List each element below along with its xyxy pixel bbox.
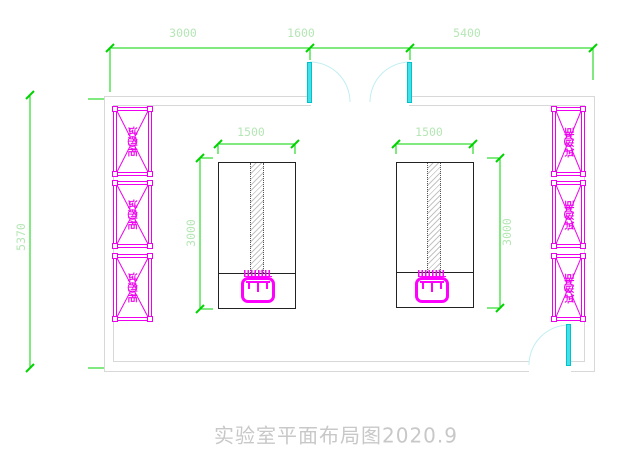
bench-reagent-shelf-hatch — [427, 163, 441, 272]
dim-top-segment-1: 3000 — [169, 26, 197, 40]
cabinet-corner-post — [580, 171, 586, 177]
cabinet-corner-post — [551, 253, 557, 259]
sink-basin — [415, 277, 449, 303]
cabinet-corner-post — [112, 253, 118, 259]
cabinet-corner-post — [580, 180, 586, 186]
floor-plan-canvas: 试剂柜 试剂柜 试剂柜 — [0, 0, 619, 469]
cabinet-corner-post — [147, 180, 153, 186]
cabinet-corner-post — [147, 316, 153, 322]
reagent-cabinet-right-2: 试剂柜 — [552, 181, 585, 248]
dim-left-bench-length: 3000 — [184, 219, 198, 247]
cabinet-corner-post — [147, 171, 153, 177]
cabinet-label: 试剂柜 — [562, 126, 576, 158]
sink-icon — [413, 270, 451, 303]
cabinet-corner-post — [112, 243, 118, 249]
bench-reagent-shelf-hatch — [250, 163, 264, 273]
cabinet-corner-post — [112, 316, 118, 322]
cabinet-label: 试剂柜 — [126, 199, 140, 231]
cabinet-corner-post — [112, 180, 118, 186]
sink-icon — [239, 270, 277, 303]
double-door-left-leaf — [307, 62, 312, 103]
drawing-title: 实验室平面布局图2020.9 — [214, 420, 458, 449]
dim-right-bench-length: 3000 — [500, 218, 514, 246]
faucet-prong — [248, 283, 250, 289]
cabinet-corner-post — [112, 171, 118, 177]
cabinet-corner-post — [580, 316, 586, 322]
cabinet-label: 试剂柜 — [126, 126, 140, 158]
top-door-opening — [311, 94, 409, 108]
dim-top-segment-3: 5400 — [453, 26, 481, 40]
faucet-prong — [440, 283, 442, 289]
double-door-right-leaf — [407, 62, 412, 103]
cabinet-label: 试剂柜 — [126, 272, 140, 304]
single-door-leaf — [566, 324, 571, 366]
reagent-cabinet-left-3: 试剂柜 — [113, 254, 152, 321]
faucet-spout — [431, 283, 433, 292]
cabinet-corner-post — [147, 106, 153, 112]
reagent-cabinet-right-1: 试剂柜 — [552, 107, 585, 176]
sink-drain-grate — [244, 270, 272, 277]
cabinet-corner-post — [147, 253, 153, 259]
cabinet-corner-post — [551, 316, 557, 322]
cabinet-label: 试剂柜 — [562, 199, 576, 231]
cabinet-corner-post — [551, 180, 557, 186]
cabinet-label: 试剂柜 — [562, 272, 576, 304]
faucet-prong — [422, 283, 424, 289]
cabinet-corner-post — [580, 253, 586, 259]
cabinet-corner-post — [551, 106, 557, 112]
dim-left-bench-width: 1500 — [237, 125, 265, 139]
cabinet-corner-post — [147, 243, 153, 249]
reagent-cabinet-left-2: 试剂柜 — [113, 181, 152, 248]
dim-top-segment-2: 1600 — [287, 26, 315, 40]
cabinet-corner-post — [551, 243, 557, 249]
cabinet-corner-post — [580, 243, 586, 249]
faucet-spout — [257, 283, 259, 292]
dim-room-depth: 5370 — [14, 223, 28, 251]
reagent-cabinet-left-1: 试剂柜 — [113, 107, 152, 176]
bottom-door-opening — [529, 358, 571, 374]
faucet-prong — [266, 283, 268, 289]
sink-basin — [241, 277, 275, 303]
dim-right-bench-width: 1500 — [415, 125, 443, 139]
cabinet-corner-post — [551, 171, 557, 177]
cabinet-corner-post — [580, 106, 586, 112]
cabinet-corner-post — [112, 106, 118, 112]
reagent-cabinet-right-3: 试剂柜 — [552, 254, 585, 321]
sink-drain-grate — [418, 270, 446, 277]
